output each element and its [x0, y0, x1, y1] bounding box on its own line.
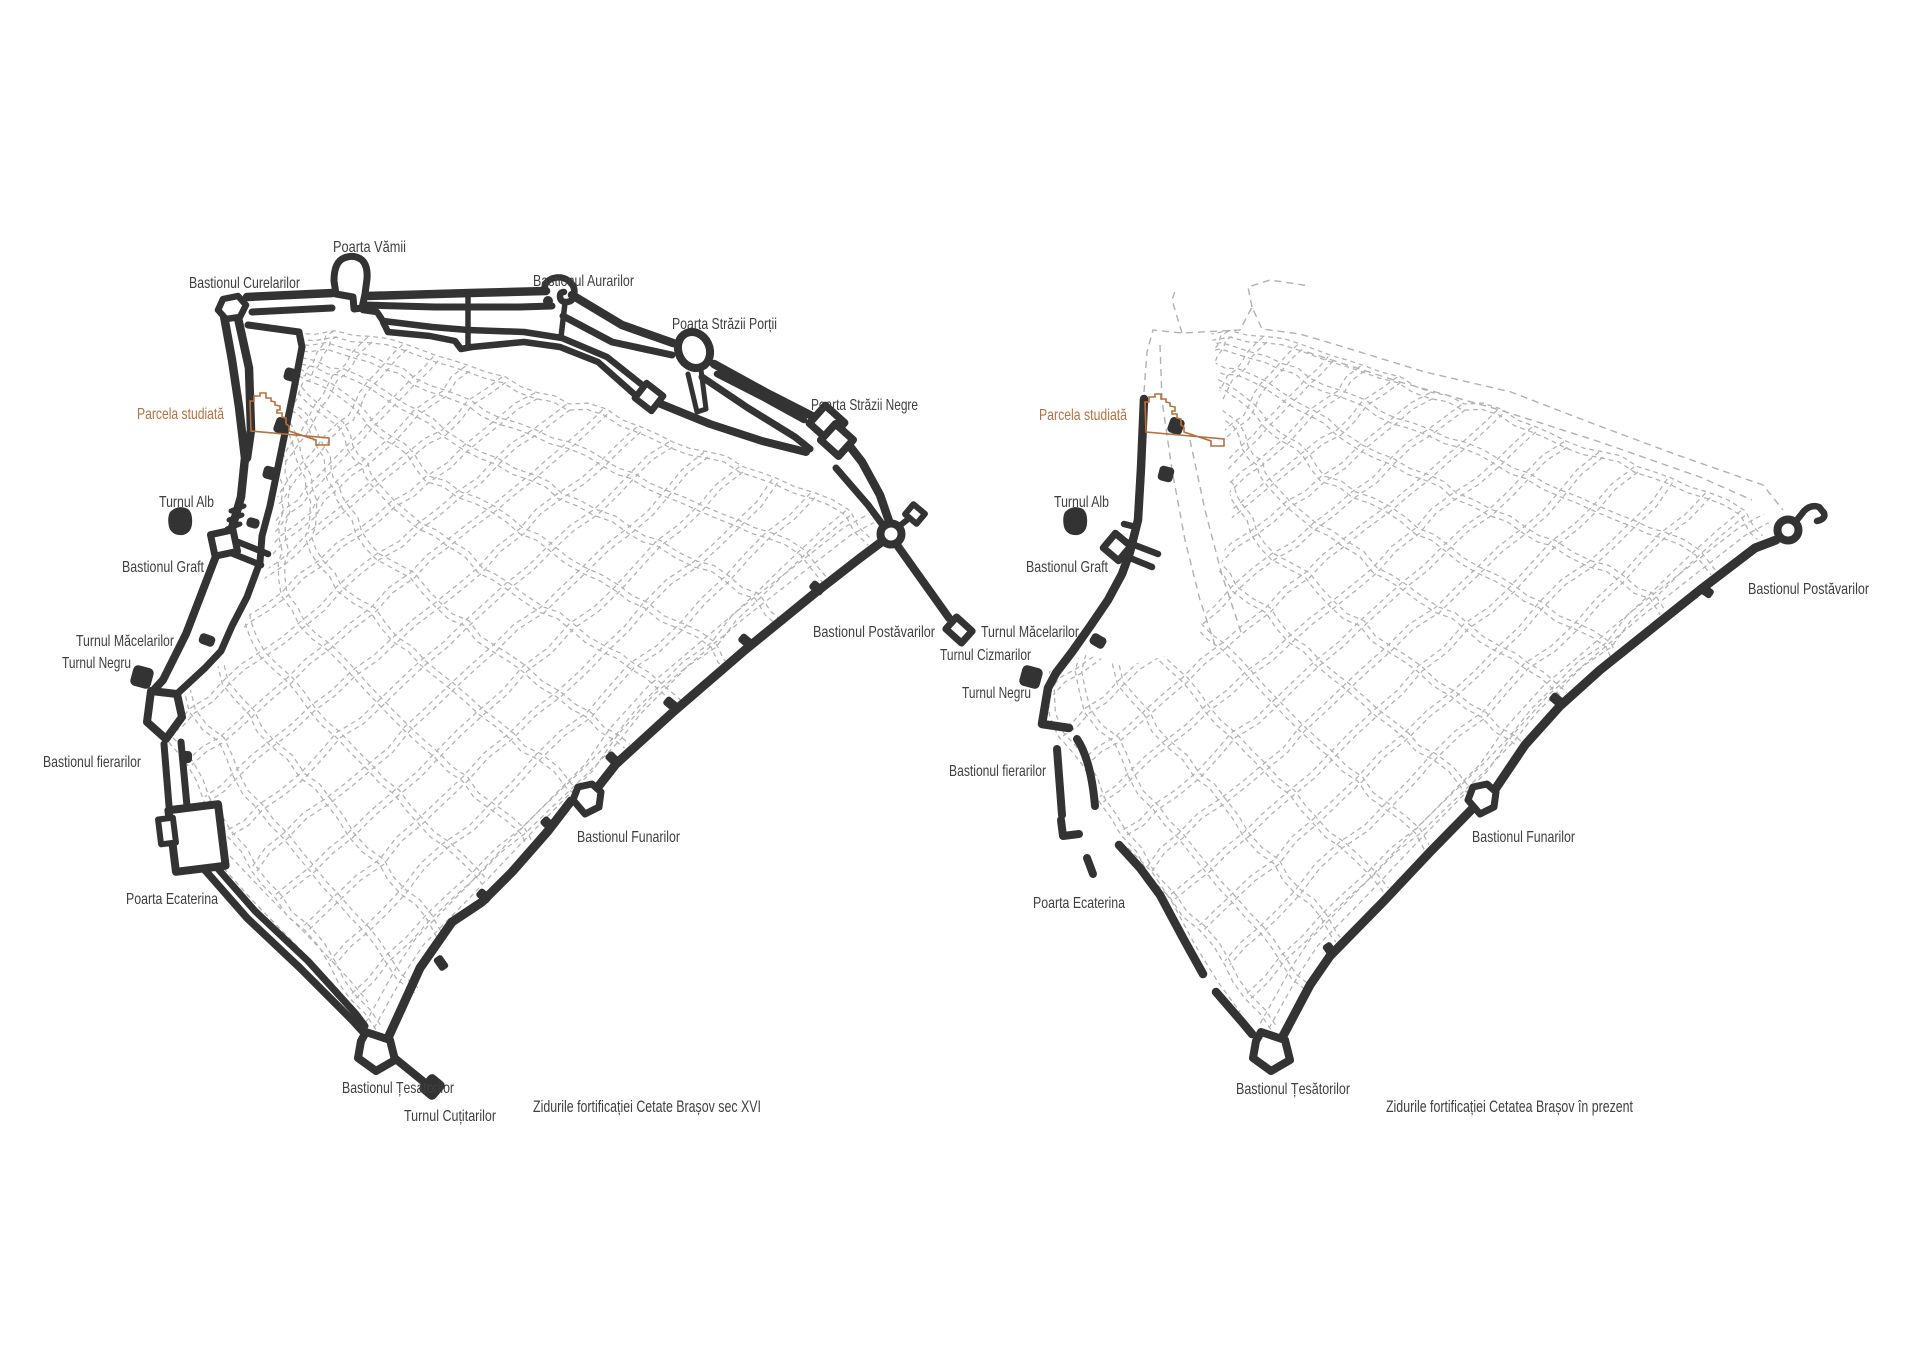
svg-text:Bastionul Postăvarilor: Bastionul Postăvarilor — [1748, 581, 1870, 598]
svg-text:Turnul Negru: Turnul Negru — [962, 685, 1031, 702]
svg-text:Turnul Cizmarilor: Turnul Cizmarilor — [940, 647, 1032, 664]
svg-text:Zidurile fortificației Cetatea: Zidurile fortificației Cetatea Brașov în… — [1386, 1097, 1633, 1116]
svg-text:Bastionul Aurarilor: Bastionul Aurarilor — [533, 273, 635, 290]
svg-text:Bastionul fierarilor: Bastionul fierarilor — [949, 763, 1047, 780]
svg-text:Poarta Ecaterina: Poarta Ecaterina — [126, 891, 218, 908]
svg-text:Bastionul Curelarilor: Bastionul Curelarilor — [189, 275, 301, 292]
svg-text:Turnul Alb: Turnul Alb — [1054, 494, 1109, 511]
svg-text:Poarta Străzii Porții: Poarta Străzii Porții — [672, 316, 777, 333]
svg-text:Bastionul Graft: Bastionul Graft — [122, 559, 204, 576]
svg-text:Turnul Măcelarilor: Turnul Măcelarilor — [981, 624, 1080, 641]
svg-text:Turnul Cuțitarilor: Turnul Cuțitarilor — [404, 1108, 497, 1125]
svg-text:Turnul Măcelarilor: Turnul Măcelarilor — [76, 633, 175, 650]
svg-text:Turnul Alb: Turnul Alb — [159, 494, 214, 511]
svg-text:Poarta Ecaterina: Poarta Ecaterina — [1033, 895, 1125, 912]
svg-text:Bastionul Postăvarilor: Bastionul Postăvarilor — [813, 624, 936, 641]
svg-text:Bastionul Țesătorilor: Bastionul Țesătorilor — [1236, 1081, 1351, 1098]
svg-text:Parcela studiată: Parcela studiată — [137, 406, 224, 423]
svg-text:Bastionul fierarilor: Bastionul fierarilor — [43, 754, 142, 771]
svg-text:Bastionul Țesătorilor: Bastionul Țesătorilor — [342, 1080, 455, 1097]
svg-text:Poarta Vămii: Poarta Vămii — [333, 239, 406, 256]
svg-text:Bastionul Funarilor: Bastionul Funarilor — [577, 829, 681, 846]
svg-text:Turnul Negru: Turnul Negru — [62, 655, 131, 672]
svg-text:Parcela studiată: Parcela studiată — [1039, 407, 1127, 424]
svg-text:Poarta Străzii Negre: Poarta Străzii Negre — [811, 397, 918, 414]
svg-text:Bastionul Funarilor: Bastionul Funarilor — [1472, 829, 1576, 846]
svg-text:Zidurile fortificației Cetate: Zidurile fortificației Cetate Brașov sec… — [533, 1097, 761, 1116]
svg-text:Bastionul Graft: Bastionul Graft — [1026, 559, 1108, 576]
